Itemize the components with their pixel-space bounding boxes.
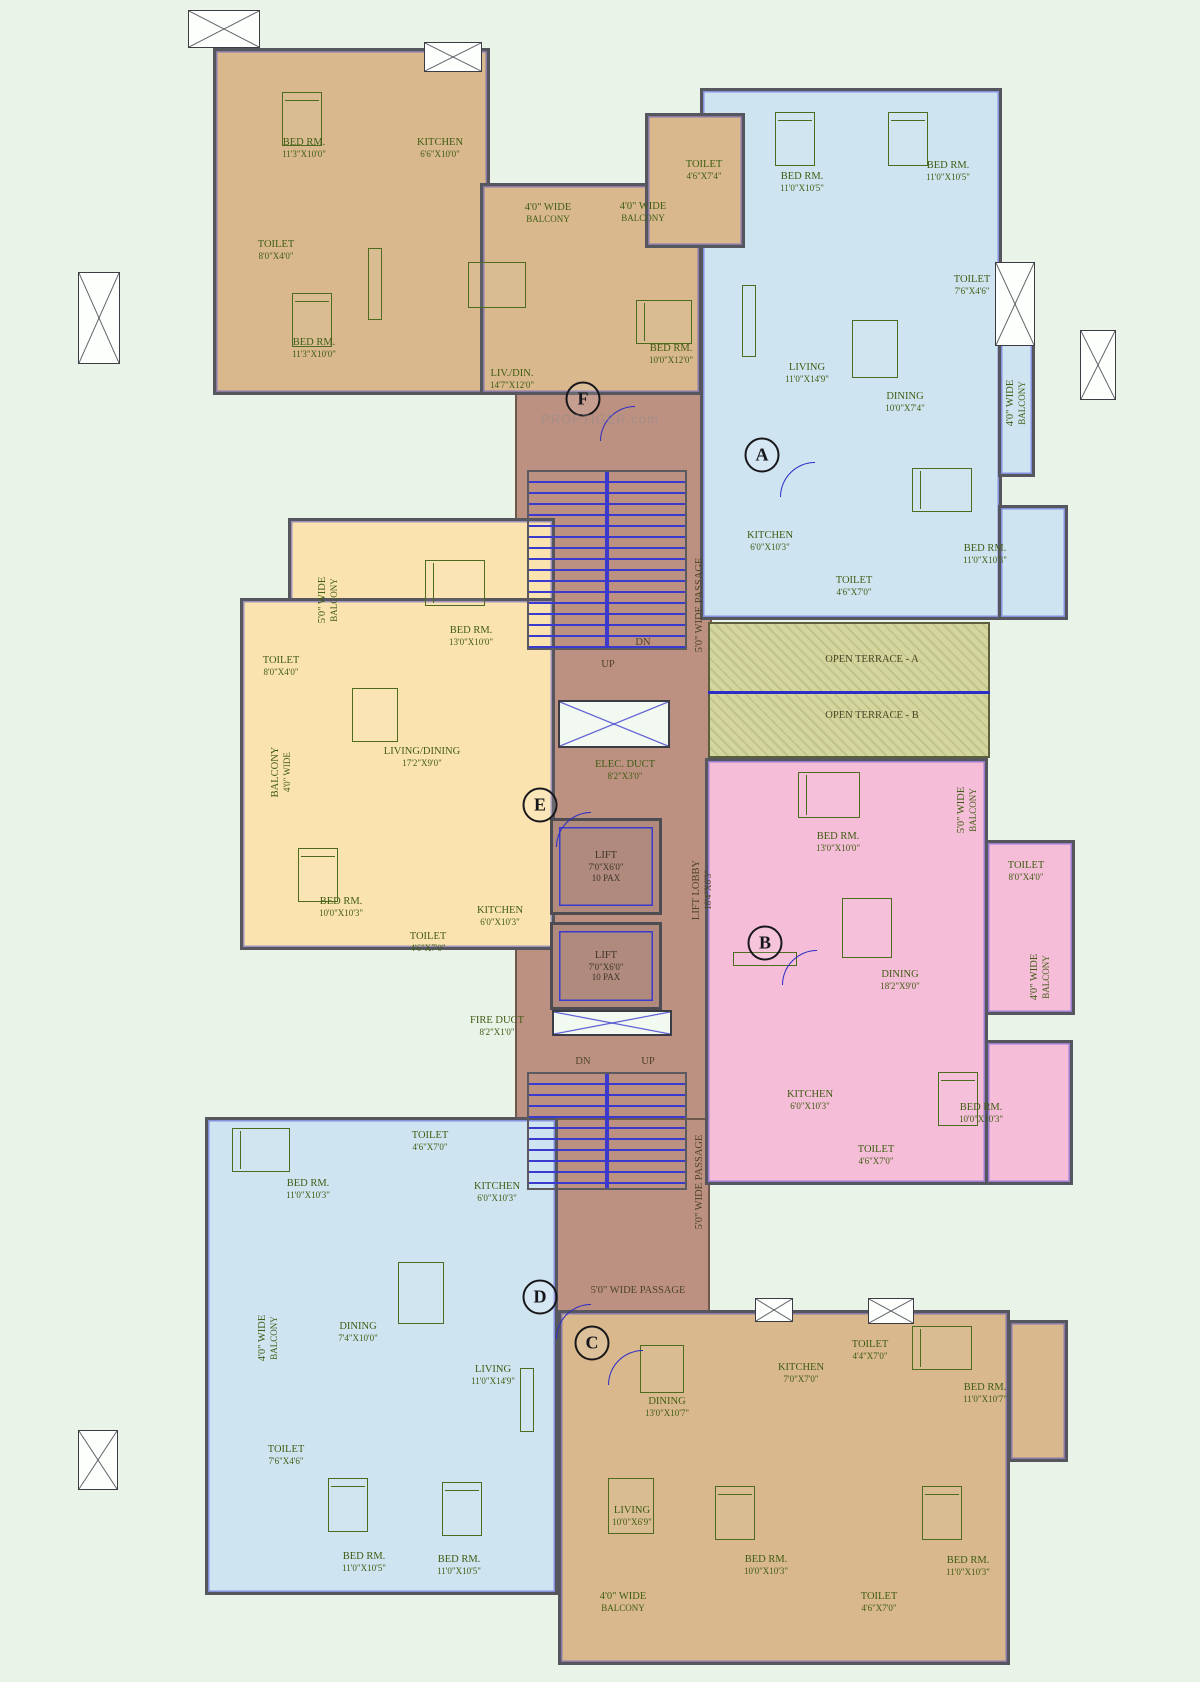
f-kitchen-label: KITCHEN6'6"X10'0" <box>417 137 463 159</box>
dining-table-icon <box>852 320 898 378</box>
e-toilet2-label: TOILET4'6"X7'0" <box>410 931 447 953</box>
unit-marker-e: E <box>523 788 558 823</box>
d-toilet2-label: TOILET7'6"X4'6" <box>268 1444 305 1466</box>
f-bed3-label: BED RM.10'0"X12'0" <box>649 343 693 365</box>
bed-icon <box>298 848 338 902</box>
fire-duct-label: FIRE DUCT8'2"X1'0" <box>470 1015 524 1037</box>
a-toilet2-label: TOILET4'6"X7'0" <box>836 575 873 597</box>
bed-icon <box>888 112 928 166</box>
e-livdin-label: LIVING/DINING17'2"X9'0" <box>384 746 460 768</box>
staircase-upper <box>527 470 687 650</box>
sofa-icon <box>742 285 756 357</box>
c-kitchen-label: KITCHEN7'0"X7'0" <box>778 1362 824 1384</box>
b-bed2-label: BED RM.10'0"X10'3" <box>959 1102 1003 1124</box>
a-bed2-label: BED RM.11'0"X10'5" <box>926 160 970 182</box>
terrace-divider <box>708 691 990 694</box>
dining-table-icon <box>640 1345 684 1393</box>
e-kitchen-label: KITCHEN6'0"X10'3" <box>477 905 523 927</box>
b-dining-label: DINING18'2"X9'0" <box>880 969 920 991</box>
d-bed1-label: BED RM.11'0"X10'3" <box>286 1178 330 1200</box>
lift-lobby-label: LIFT LOBBY18'4"X6'3" <box>691 860 713 920</box>
bed-icon <box>798 772 860 818</box>
bed-icon <box>442 1482 482 1536</box>
d-toilet1-label: TOILET4'6"X7'0" <box>412 1130 449 1152</box>
sofa-icon <box>368 248 382 320</box>
e-bed2-label: BED RM.10'0"X10'3" <box>319 896 363 918</box>
staircase-lower <box>527 1072 687 1190</box>
dining-table-icon <box>468 262 526 308</box>
c-living-label: LIVING10'0"X6'9" <box>612 1505 652 1527</box>
fire-duct <box>552 1010 672 1036</box>
f-toilet1-label: TOILET8'0"X4'0" <box>258 239 295 261</box>
f-bed2-label: BED RM.11'3"X10'0" <box>292 337 336 359</box>
f-balcony1-label: 4'0" WIDEBALCONY <box>525 202 572 224</box>
watermark: PROPTIGER.com <box>541 412 659 427</box>
lift-1-label: LIFT <box>588 850 623 862</box>
f-toilet2-label: TOILET4'6"X7'4" <box>686 159 723 181</box>
a-bed3-label: BED RM.11'0"X10'3" <box>963 543 1007 565</box>
f-bed1-label: BED RM.11'3"X10'0" <box>282 137 326 159</box>
column-icon <box>78 272 120 364</box>
lift-2: LIFT7'0"X6'0"10 PAX <box>550 922 662 1010</box>
e-bed1-label: BED RM.13'0"X10'0" <box>449 625 493 647</box>
column-icon <box>1080 330 1116 400</box>
stair2-dn-label: DN <box>575 1056 590 1068</box>
column-icon <box>188 10 260 48</box>
floor-plan: LIFT7'0"X6'0"10 PAX LIFT7'0"X6'0"10 PAX … <box>0 0 1200 1682</box>
f-balcony2-label: 4'0" WIDEBALCONY <box>620 201 667 223</box>
column-icon <box>868 1298 914 1324</box>
d-balcony-label: 4'0" WIDEBALCONY <box>257 1315 279 1362</box>
c-bed3-label: BED RM.11'0"X10'3" <box>946 1555 990 1577</box>
bed-icon <box>715 1486 755 1540</box>
a-kitchen-label: KITCHEN6'0"X10'3" <box>747 530 793 552</box>
b-toilet1-label: TOILET8'0"X4'0" <box>1008 860 1045 882</box>
b-kitchen-label: KITCHEN6'0"X10'3" <box>787 1089 833 1111</box>
c-bed1-label: BED RM.11'0"X10'7" <box>963 1382 1007 1404</box>
bed-icon <box>922 1486 962 1540</box>
lift-2-label: LIFT <box>588 950 623 962</box>
bed-icon <box>912 468 972 512</box>
c-toilet2-label: TOILET4'6"X7'0" <box>861 1591 898 1613</box>
d-dining-label: DINING7'4"X10'0" <box>338 1321 378 1343</box>
b-balcony2-label: 4'0" WIDEBALCONY <box>1029 954 1051 1001</box>
unit-f-region <box>213 48 490 395</box>
bed-icon <box>232 1128 290 1172</box>
open-terrace-b-label: OPEN TERRACE - B <box>825 710 918 722</box>
e-balcony1-label: 5'0" WIDEBALCONY <box>317 577 339 624</box>
bed-icon <box>425 560 485 606</box>
c-toilet1-label: TOILET4'4"X7'0" <box>852 1339 889 1361</box>
unit-marker-b: B <box>748 926 783 961</box>
passage-label-upper: 5'0" WIDE PASSAGE <box>694 558 706 653</box>
d-bed3-label: BED RM.11'0"X10'5" <box>437 1554 481 1576</box>
unit-marker-d: D <box>523 1280 558 1315</box>
elec-duct <box>558 700 670 748</box>
a-living-label: LIVING11'0"X14'9" <box>785 362 829 384</box>
bed-icon <box>328 1478 368 1532</box>
sofa-icon <box>520 1368 534 1432</box>
e-toilet1-label: TOILET8'0"X4'0" <box>263 655 300 677</box>
a-balcony-label: 4'0" WIDEBALCONY <box>1005 380 1027 427</box>
bed-icon <box>775 112 815 166</box>
a-bed1-label: BED RM.11'0"X10'5" <box>780 171 824 193</box>
d-living-label: LIVING11'0"X14'9" <box>471 1364 515 1386</box>
stair-up-label: UP <box>601 659 614 671</box>
bed-icon <box>912 1326 972 1370</box>
stair2-up-label: UP <box>641 1056 654 1068</box>
column-icon <box>424 42 482 72</box>
passage-label-lower-horizontal: 5'0" WIDE PASSAGE <box>591 1285 686 1297</box>
unit-marker-a: A <box>745 438 780 473</box>
unit-c-bedroom-annex <box>1008 1320 1068 1462</box>
dining-table-icon <box>842 898 892 958</box>
e-balcony2-label: BALCONY4'0" WIDE <box>270 747 292 798</box>
open-terrace-a-label: OPEN TERRACE - A <box>825 654 918 666</box>
c-dining-label: DINING13'0"X10'7" <box>645 1396 689 1418</box>
c-balcony-label: 4'0" WIDEBALCONY <box>600 1591 647 1613</box>
column-icon <box>755 1298 793 1322</box>
open-terrace <box>708 622 990 758</box>
column-icon <box>995 262 1035 346</box>
b-bed1-label: BED RM.13'0"X10'0" <box>816 831 860 853</box>
dining-table-icon <box>398 1262 444 1324</box>
b-toilet2-label: TOILET4'6"X7'0" <box>858 1144 895 1166</box>
bed-icon <box>636 300 692 344</box>
column-icon <box>78 1430 118 1490</box>
b-balcony1-label: 5'0" WIDEBALCONY <box>956 787 978 834</box>
a-toilet1-label: TOILET7'6"X4'6" <box>954 274 991 296</box>
stair-dn-label: DN <box>635 637 650 649</box>
c-bed2-label: BED RM.10'0"X10'3" <box>744 1554 788 1576</box>
unit-a-bedroom-annex <box>998 505 1068 620</box>
passage-label-lower-vertical: 5'0" WIDE PASSAGE <box>694 1135 706 1230</box>
f-livdin-label: LIV./DIN.14'7"X12'0" <box>490 368 534 390</box>
d-bed2-label: BED RM.11'0"X10'5" <box>342 1551 386 1573</box>
dining-table-icon <box>352 688 398 742</box>
unit-marker-c: C <box>575 1326 610 1361</box>
d-kitchen-label: KITCHEN6'0"X10'3" <box>474 1181 520 1203</box>
a-dining-label: DINING10'0"X7'4" <box>885 391 925 413</box>
elec-duct-label: ELEC. DUCT8'2"X3'0" <box>595 759 655 781</box>
